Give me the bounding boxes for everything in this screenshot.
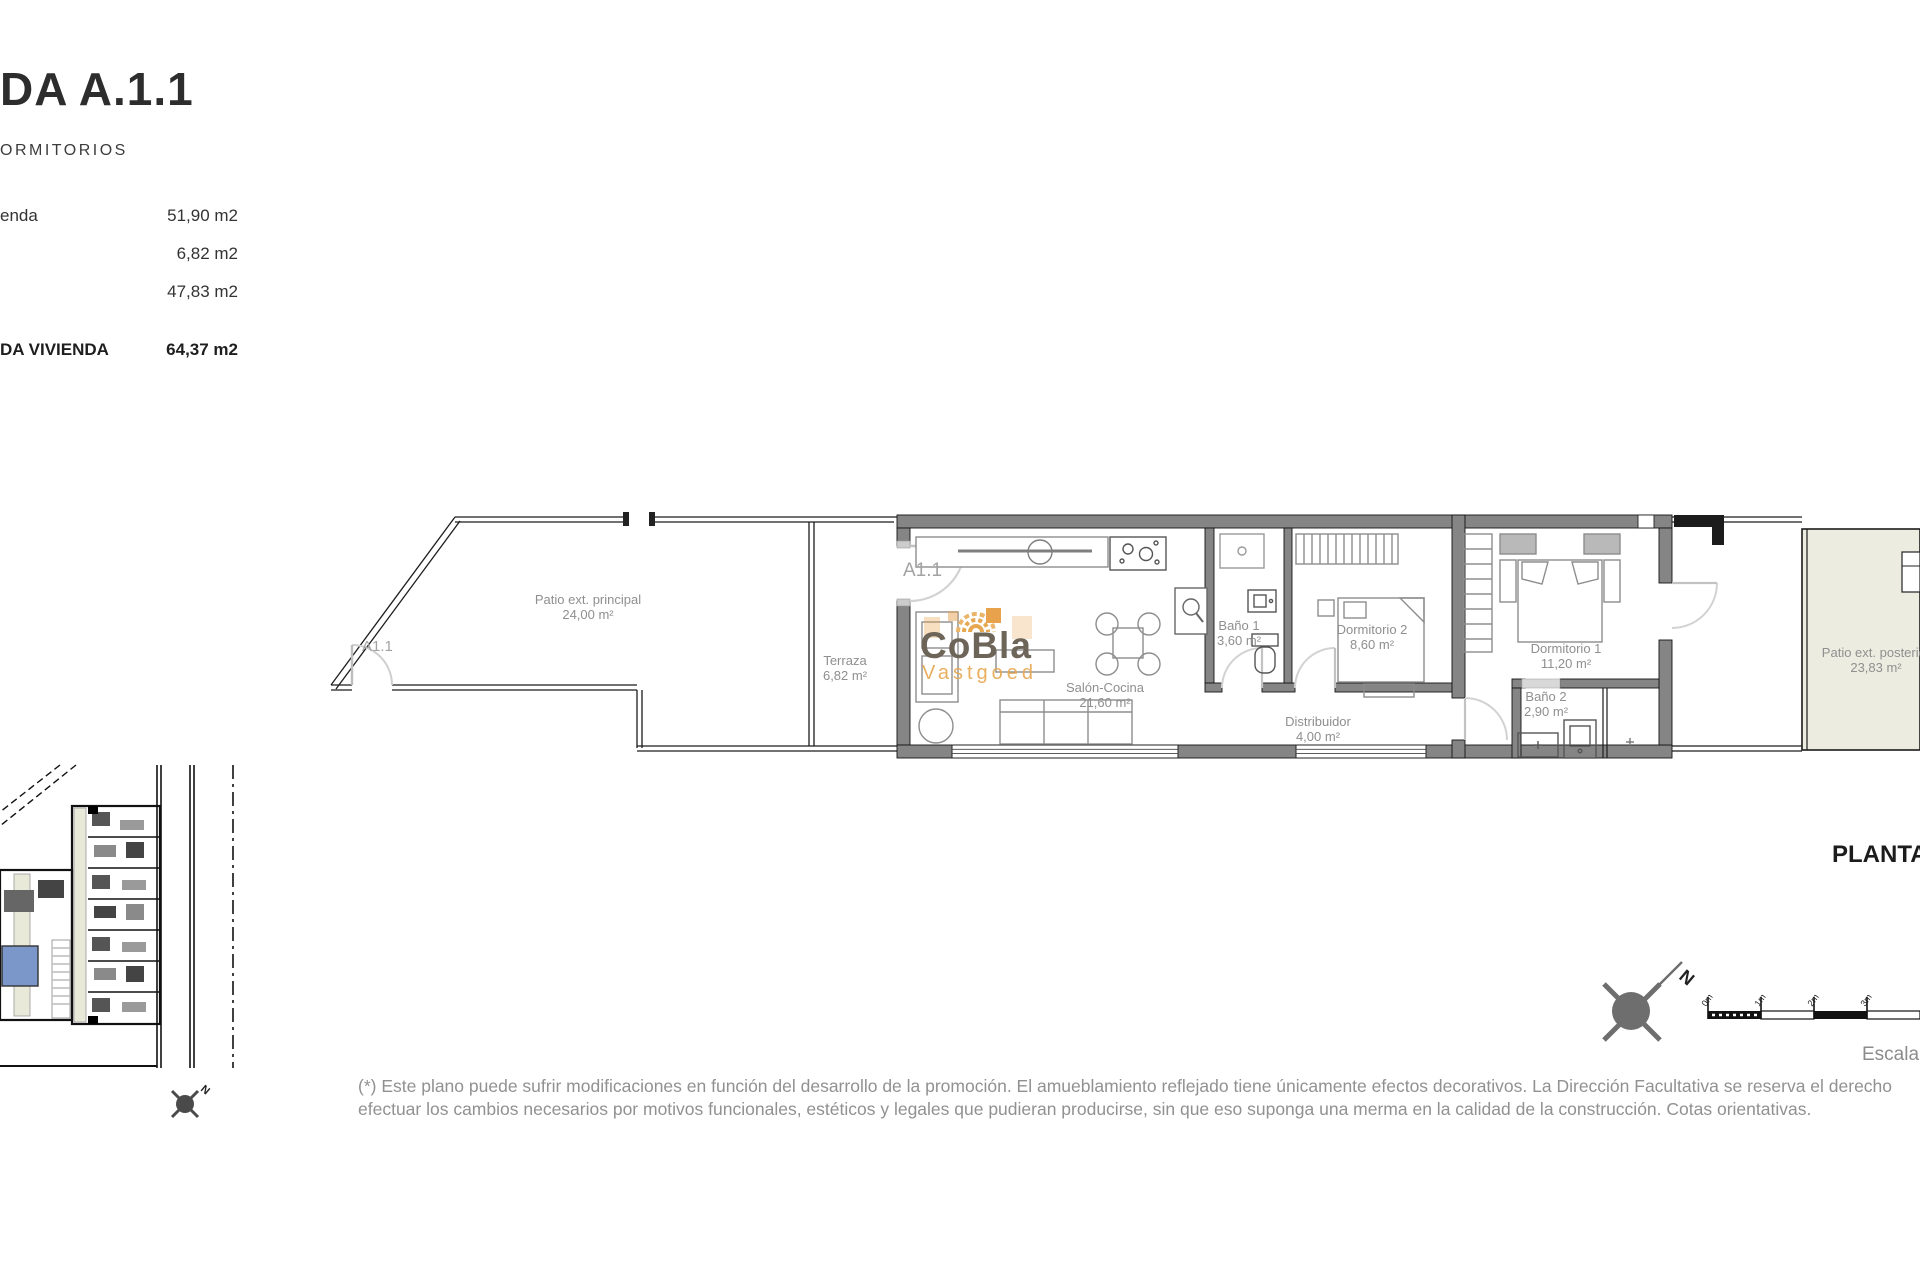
page-title: DA A.1.1 (0, 62, 194, 116)
north-letter: N (1675, 966, 1698, 990)
page-subtitle: ORMITORIOS (0, 142, 128, 160)
area-row-util: 47,83 m2 (0, 282, 238, 302)
north-arrow-icon: N (1604, 962, 1698, 1040)
scale-bar: 0m 1m 2m 3m (1699, 992, 1920, 1019)
area-row-vivienda: enda 51,90 m2 (0, 206, 238, 226)
site-north-arrow-icon: N (172, 1083, 212, 1117)
scale-word: Escala (1862, 1044, 1919, 1066)
area-row-value: 51,90 m2 (167, 206, 238, 226)
area-total-label: DA VIVIENDA (0, 340, 109, 360)
area-row-value: 47,83 m2 (167, 282, 238, 302)
area-row-total: DA VIVIENDA 64,37 m2 (0, 340, 238, 360)
disclaimer-line-2: efectuar los cambios necesarios por moti… (358, 1099, 1811, 1120)
plan-sheet-title: PLANTA (1832, 841, 1920, 869)
scale-tick-1m: 1m (1752, 992, 1767, 1008)
floor-plan-page: { "header": { "title": "DA A.1.1", "subt… (0, 0, 1920, 1280)
room-label-terraza: Terraza 6,82 m² (823, 653, 867, 683)
room-label-bano-2: Baño 2 2,90 m² (1524, 689, 1568, 719)
scale-tick-3m: 3m (1858, 992, 1873, 1008)
site-plan-drawing (0, 765, 233, 1068)
entrance-unit-label: A1.1 (903, 560, 942, 582)
room-label-distribuidor: Distribuidor 4,00 m² (1285, 714, 1351, 744)
scale-tick-0m: 0m (1699, 992, 1714, 1008)
room-label-patio-posterior: Patio ext. posterior 23,83 m² (1822, 645, 1920, 675)
room-label-dormitorio-2: Dormitorio 2 8,60 m² (1337, 622, 1408, 652)
area-row-terraza: 6,82 m2 (0, 244, 238, 264)
room-label-bano-1: Baño 1 3,60 m² (1217, 618, 1261, 648)
area-row-value: 6,82 m2 (177, 244, 238, 264)
scale-tick-2m: 2m (1805, 992, 1820, 1008)
area-total-value: 64,37 m2 (166, 340, 238, 360)
disclaimer-line-1: (*) Este plano puede sufrir modificacion… (358, 1076, 1892, 1097)
area-row-label: enda (0, 206, 38, 226)
watermark-brand: CoBla (920, 625, 1032, 667)
site-north-letter: N (198, 1083, 212, 1097)
room-label-patio-principal: Patio ext. principal 24,00 m² (535, 592, 641, 622)
watermark-sub: Vastgoed (922, 662, 1037, 685)
patio-posterior-area (1802, 529, 1920, 750)
room-label-dormitorio-1: Dormitorio 1 11,20 m² (1531, 641, 1602, 671)
patio-gate-unit-label: A1.1 (362, 638, 393, 655)
room-label-salon-cocina: Salón-Cocina 21,60 m² (1066, 680, 1144, 710)
